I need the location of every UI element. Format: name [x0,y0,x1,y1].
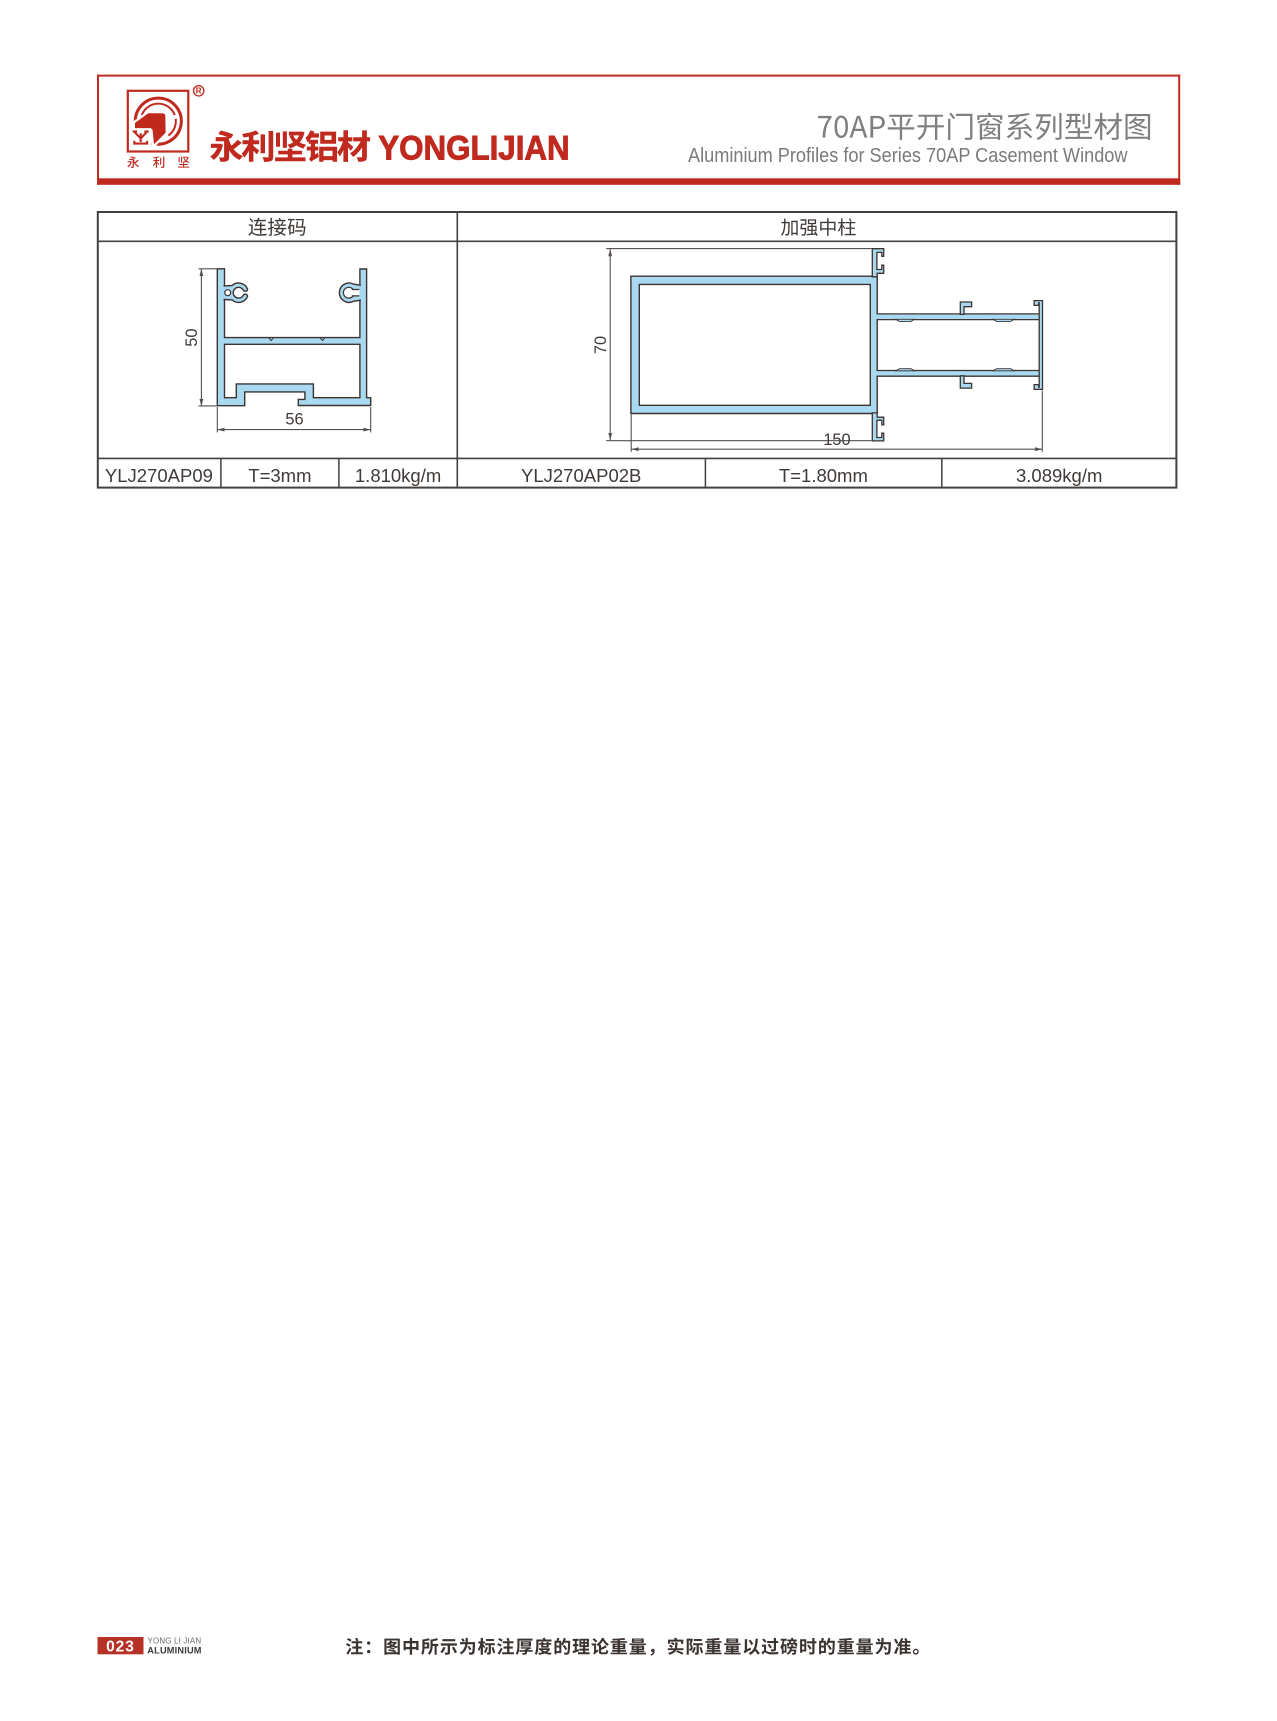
svg-text:50: 50 [183,328,201,346]
svg-text:3.089kg/m: 3.089kg/m [1016,465,1102,486]
svg-text:YONGLIJIAN: YONGLIJIAN [378,129,570,167]
svg-text:56: 56 [285,410,303,428]
svg-text:ALUMINIUM: ALUMINIUM [147,1645,202,1655]
svg-text:150: 150 [823,431,850,449]
svg-text:R: R [196,87,202,96]
svg-text:YLJ270AP09: YLJ270AP09 [105,465,213,486]
svg-text:023: 023 [106,1639,135,1656]
svg-text:Aluminium Profiles for Series: Aluminium Profiles for Series 70AP Casem… [688,145,1128,167]
svg-text:YONG LI JIAN: YONG LI JIAN [148,1637,202,1646]
svg-text:YLJ270AP02B: YLJ270AP02B [521,465,641,486]
svg-text:T=1.80mm: T=1.80mm [779,465,868,486]
svg-text:70: 70 [592,336,610,354]
svg-text:1.810kg/m: 1.810kg/m [355,465,441,486]
svg-text:T=3mm: T=3mm [248,465,311,486]
